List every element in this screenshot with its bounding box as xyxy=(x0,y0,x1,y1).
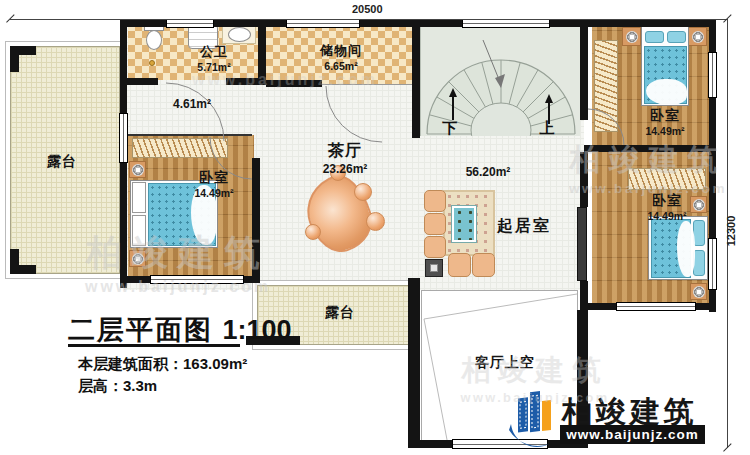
floor-area-label: 本层建筑面积： xyxy=(78,355,183,372)
title-underline xyxy=(68,344,240,347)
floor-area-line: 本层建筑面积：163.09m² xyxy=(78,355,247,374)
floor-area-value: 163.09m² xyxy=(183,355,247,372)
storage-label: 储物间6.65m² xyxy=(320,42,362,72)
floor-height-label: 层高： xyxy=(78,377,123,394)
bedroom-mid-right-label: 卧室14.49m² xyxy=(647,192,686,222)
stair-up-label: 上 xyxy=(540,119,555,138)
dimension-top-value: 20500 xyxy=(352,3,383,15)
floor-height-value: 3.3m xyxy=(123,377,157,394)
tea-hall-label: 茶厅23.26m² xyxy=(323,141,368,176)
living-combined-area-label: 56.20m² xyxy=(466,165,511,179)
brand-url: www.baijunjz.com xyxy=(560,425,705,444)
tv-panel xyxy=(577,207,587,281)
stair-down-label: 下 xyxy=(443,119,458,138)
stair-arrow-down-icon xyxy=(452,96,454,120)
terrace-bottom-label: 露台 xyxy=(325,304,355,322)
hallway-area-label: 4.61m² xyxy=(173,97,211,111)
terrace-left-label: 露台 xyxy=(47,153,77,171)
plan-scale: 1:100 xyxy=(223,315,292,345)
floor-plan-canvas: 20500 12300 xyxy=(0,0,750,455)
bathroom-label: 公卫5.71m² xyxy=(197,43,230,73)
dimension-right-value: 12300 xyxy=(725,216,737,247)
bedroom-left-label: 卧室14.49m² xyxy=(194,169,233,199)
brand-logo-icon xyxy=(503,386,559,448)
plan-title-text: 二层平面图 xyxy=(68,315,213,345)
bedroom-top-right-label: 卧室14.49m² xyxy=(645,107,684,137)
floor-height-line: 层高：3.3m xyxy=(78,377,157,396)
dimension-line-top xyxy=(10,19,727,20)
void-above-living-label: 客厅上空 xyxy=(475,354,535,372)
plan-title: 二层平面图 1:100 xyxy=(68,312,292,348)
living-room-label: 起居室 xyxy=(497,216,551,237)
